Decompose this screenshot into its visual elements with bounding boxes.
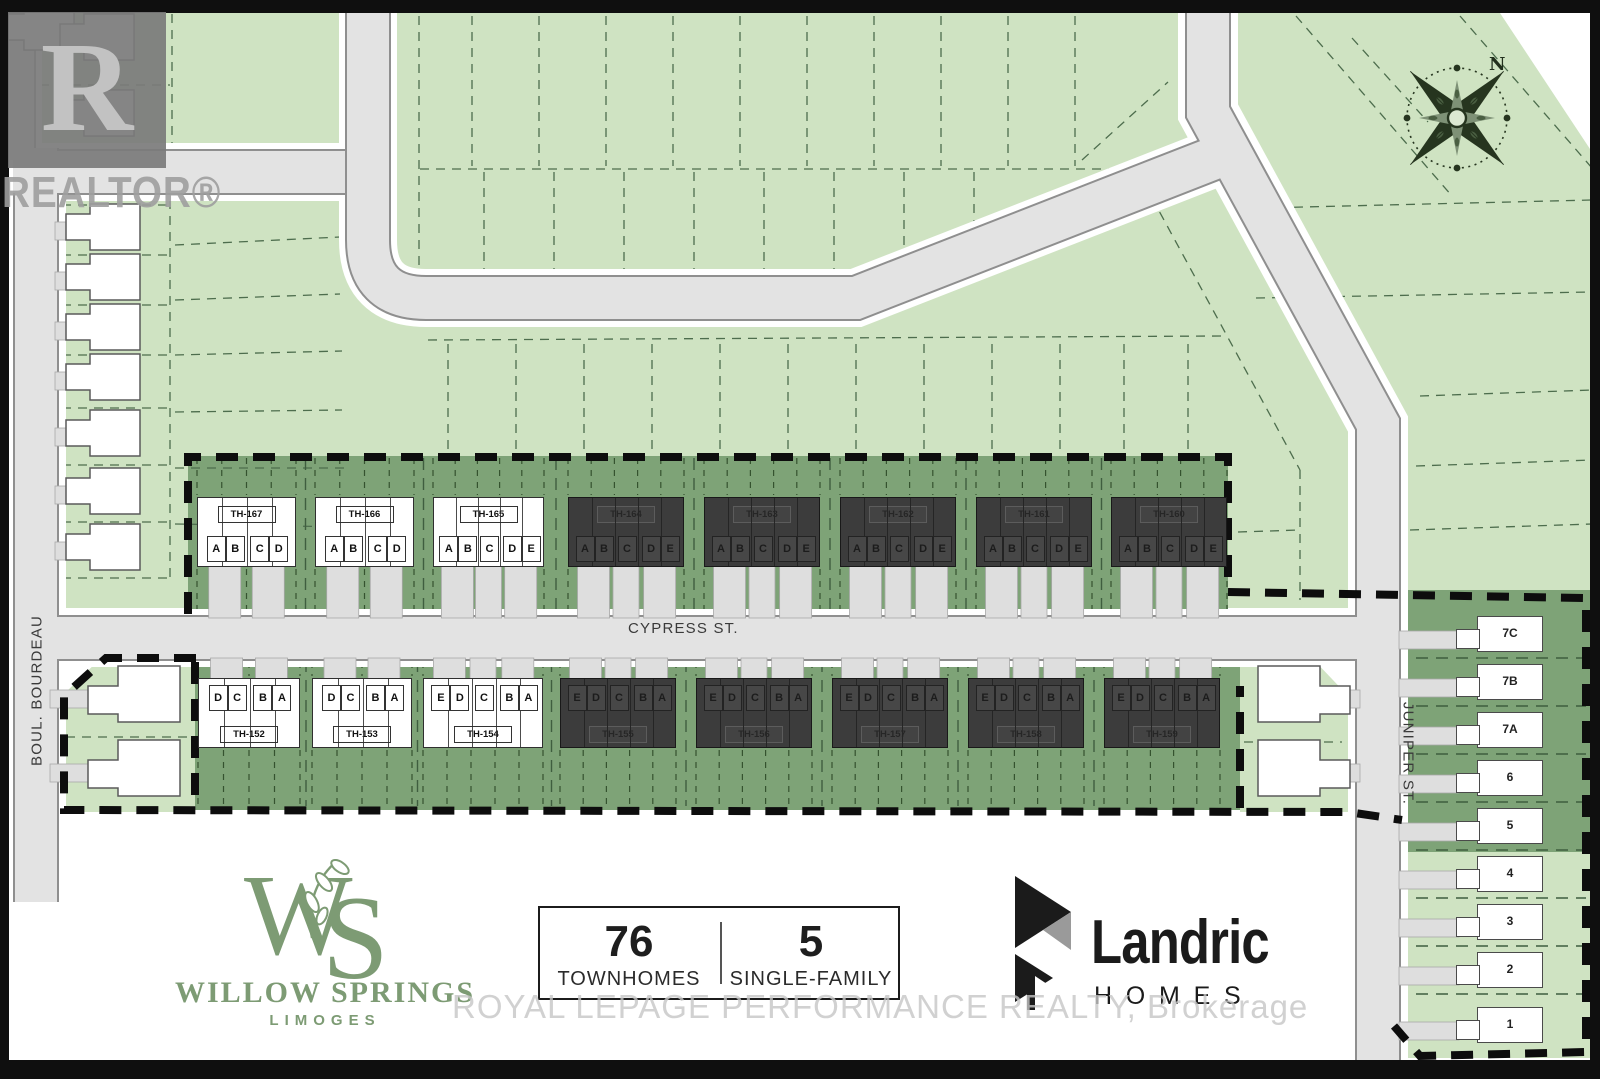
unit-letter: B	[500, 685, 519, 711]
unit-divider	[1023, 498, 1024, 566]
townhome-block: TH-163ABCDE	[704, 497, 820, 567]
townhome-block: TH-161ABCDE	[976, 497, 1092, 567]
unit-letter: A	[439, 536, 458, 562]
unit-letter: C	[618, 536, 637, 562]
unit-letter: B	[1042, 685, 1061, 711]
townhome-block: TH-152DCBA	[198, 678, 300, 748]
unit-letter: D	[322, 685, 341, 711]
garage	[1456, 869, 1480, 889]
garage	[1456, 1020, 1480, 1040]
townhome-block: TH-154EDCBA	[423, 678, 543, 748]
unit-divider	[496, 679, 497, 747]
street-label-juniper: JUNIPER ST.	[1400, 659, 1417, 849]
unit-divider	[1038, 679, 1039, 747]
unit-letter: C	[1026, 536, 1045, 562]
unit-letter: C	[250, 536, 269, 562]
unit-letter: B	[253, 685, 272, 711]
community-name: WILLOW SPRINGS	[170, 976, 480, 1010]
unit-letter: A	[712, 536, 731, 562]
townhome-block-label: TH-163	[733, 506, 791, 523]
compass-north-label: N	[1489, 54, 1505, 75]
unit-divider	[250, 679, 251, 747]
unit-letter: D	[503, 536, 522, 562]
townhome-block-label: TH-158	[997, 726, 1055, 743]
unit-letter: A	[925, 685, 944, 711]
unit-letter: A	[984, 536, 1003, 562]
unit-letter: B	[458, 536, 477, 562]
unit-letter: B	[344, 536, 363, 562]
unit-divider	[247, 498, 248, 566]
unit-divider	[500, 498, 501, 566]
single-family-house: 1	[1477, 1007, 1543, 1043]
unit-letter: D	[1050, 536, 1069, 562]
unit-letter: C	[480, 536, 499, 562]
legend-box: 76 TOWNHOMES 5 SINGLE-FAMILY	[538, 906, 900, 1000]
unit-letter: A	[1061, 685, 1080, 711]
unit-letter: A	[848, 536, 867, 562]
unit-letter: C	[746, 685, 765, 711]
unit-letter: E	[661, 536, 680, 562]
unit-letter: B	[366, 685, 385, 711]
townhome-block: TH-160ABCDE	[1111, 497, 1227, 567]
unit-letter: D	[914, 536, 933, 562]
unit-letter: A	[207, 536, 226, 562]
unit-divider	[1174, 679, 1175, 747]
unit-divider	[638, 498, 639, 566]
unit-divider	[478, 498, 479, 566]
single-family-house: 7A	[1477, 712, 1543, 748]
driveway	[1399, 967, 1459, 985]
single-family-house: 3	[1477, 904, 1543, 940]
garage	[1456, 629, 1480, 649]
unit-letter: C	[610, 685, 629, 711]
unit-letter: E	[522, 536, 541, 562]
unit-letter: B	[906, 685, 925, 711]
townhome-block: TH-157EDCBA	[832, 678, 948, 748]
unit-letter: B	[731, 536, 750, 562]
unit-divider	[751, 498, 752, 566]
unit-divider	[1015, 679, 1016, 747]
garage	[1456, 965, 1480, 985]
unit-letter: B	[1138, 536, 1157, 562]
unit-letter: C	[1018, 685, 1037, 711]
unit-divider	[630, 679, 631, 747]
unit-divider	[743, 679, 744, 747]
unit-letter: E	[840, 685, 859, 711]
unit-divider	[887, 498, 888, 566]
garage	[1456, 917, 1480, 937]
unit-letter: D	[387, 536, 406, 562]
unit-letter: C	[228, 685, 247, 711]
single-family-house: 5	[1477, 808, 1543, 844]
street-label-cypress: CYPRESS ST.	[628, 620, 739, 637]
unit-divider	[910, 498, 911, 566]
unit-letter: E	[1204, 536, 1223, 562]
unit-letter: C	[1154, 685, 1173, 711]
unit-letter: E	[1069, 536, 1088, 562]
site-plan-page: TH-167ABCDTH-166ABCDTH-165ABCDETH-164ABC…	[0, 0, 1600, 1079]
unit-letter: D	[209, 685, 228, 711]
driveway	[1399, 919, 1459, 937]
unit-letter: C	[475, 685, 494, 711]
brokerage-watermark: ROYAL LEPAGE PERFORMANCE REALTY, Brokera…	[452, 988, 1308, 1026]
unit-letter: D	[1185, 536, 1204, 562]
single-family-house: 2	[1477, 952, 1543, 988]
legend-townhomes: 76 TOWNHOMES	[540, 908, 718, 998]
townhome-block: TH-162ABCDE	[840, 497, 956, 567]
townhome-block: TH-159EDCBA	[1104, 678, 1220, 748]
townhome-block-label: TH-159	[1133, 726, 1191, 743]
single-family-count: 5	[722, 920, 900, 964]
unit-letter: C	[882, 685, 901, 711]
unit-letter: A	[576, 536, 595, 562]
realtor-watermark: R	[8, 12, 166, 168]
unit-letter: C	[1161, 536, 1180, 562]
unit-letter: A	[325, 536, 344, 562]
unit-divider	[902, 679, 903, 747]
unit-letter: E	[431, 685, 450, 711]
townhome-block-label: TH-156	[725, 726, 783, 743]
townhomes-count: 76	[540, 920, 718, 964]
unit-divider	[1181, 498, 1182, 566]
unit-letter: C	[754, 536, 773, 562]
unit-letter: E	[976, 685, 995, 711]
unit-letter: D	[269, 536, 288, 562]
single-family-house: 7B	[1477, 664, 1543, 700]
townhome-block-label: TH-162	[869, 506, 927, 523]
unit-letter: A	[789, 685, 808, 711]
realtor-label: REALTOR®	[2, 168, 221, 218]
unit-divider	[1046, 498, 1047, 566]
garage	[1456, 725, 1480, 745]
townhome-block: TH-166ABCD	[315, 497, 414, 567]
unit-letter: E	[797, 536, 816, 562]
legend-single-family: 5 SINGLE-FAMILY	[722, 908, 900, 998]
unit-divider	[1151, 679, 1152, 747]
unit-letter: E	[1112, 685, 1131, 711]
unit-letter: B	[867, 536, 886, 562]
unit-letter: D	[450, 685, 469, 711]
unit-letter: A	[272, 685, 291, 711]
unit-letter: C	[890, 536, 909, 562]
unit-letter: B	[595, 536, 614, 562]
townhome-block: TH-165ABCDE	[433, 497, 544, 567]
unit-divider	[363, 679, 364, 747]
leaf-sprig-icon	[298, 854, 368, 944]
unit-letter: A	[385, 685, 404, 711]
unit-letter: D	[995, 685, 1014, 711]
unit-letter: A	[1119, 536, 1138, 562]
unit-letter: A	[1197, 685, 1216, 711]
townhome-block: TH-156EDCBA	[696, 678, 812, 748]
townhome-block-label: TH-161	[1005, 506, 1063, 523]
townhome-block-label: TH-157	[861, 726, 919, 743]
unit-letter: B	[1003, 536, 1022, 562]
garage	[1456, 677, 1480, 697]
unit-letter: B	[1178, 685, 1197, 711]
unit-divider	[615, 498, 616, 566]
single-family-house: 7C	[1477, 616, 1543, 652]
unit-letter: E	[568, 685, 587, 711]
willow-springs-logo: W S WILLOW SPRINGS LIMOGES	[170, 852, 480, 1032]
townhome-block-label: TH-160	[1140, 506, 1198, 523]
unit-letter: A	[519, 685, 538, 711]
single-family-house: 6	[1477, 760, 1543, 796]
realtor-monogram: R	[8, 12, 166, 162]
townhome-block-label: TH-154	[454, 726, 512, 743]
townhome-block: TH-164ABCDE	[568, 497, 684, 567]
unit-divider	[766, 679, 767, 747]
unit-divider	[472, 679, 473, 747]
single-family-house: 4	[1477, 856, 1543, 892]
unit-letter: E	[933, 536, 952, 562]
unit-letter: D	[859, 685, 878, 711]
townhome-block-label: TH-155	[589, 726, 647, 743]
unit-letter: B	[634, 685, 653, 711]
unit-divider	[774, 498, 775, 566]
townhome-block-label: TH-164	[597, 506, 655, 523]
unit-divider	[365, 498, 366, 566]
builder-name: Landric	[1091, 912, 1269, 974]
unit-divider	[879, 679, 880, 747]
driveway	[1399, 871, 1459, 889]
unit-letter: E	[704, 685, 723, 711]
townhome-block: TH-158EDCBA	[968, 678, 1084, 748]
unit-letter: D	[1131, 685, 1150, 711]
garage	[1456, 821, 1480, 841]
garage	[1456, 773, 1480, 793]
unit-letter: D	[642, 536, 661, 562]
townhome-block: TH-155EDCBA	[560, 678, 676, 748]
townhome-block-label: TH-165	[460, 506, 518, 523]
community-subtitle: LIMOGES	[170, 1012, 480, 1029]
unit-letter: A	[653, 685, 672, 711]
unit-divider	[607, 679, 608, 747]
unit-letter: D	[778, 536, 797, 562]
street-label-bourdeau: BOUL. BOURDEAU	[29, 596, 46, 786]
townhome-block: TH-153DCBA	[312, 678, 412, 748]
unit-letter: C	[368, 536, 387, 562]
unit-letter: C	[341, 685, 360, 711]
townhome-block: TH-167ABCD	[197, 497, 296, 567]
unit-divider	[1158, 498, 1159, 566]
driveway	[1399, 631, 1459, 649]
unit-letter: D	[723, 685, 742, 711]
unit-letter: B	[770, 685, 789, 711]
unit-letter: D	[587, 685, 606, 711]
unit-letter: B	[226, 536, 245, 562]
